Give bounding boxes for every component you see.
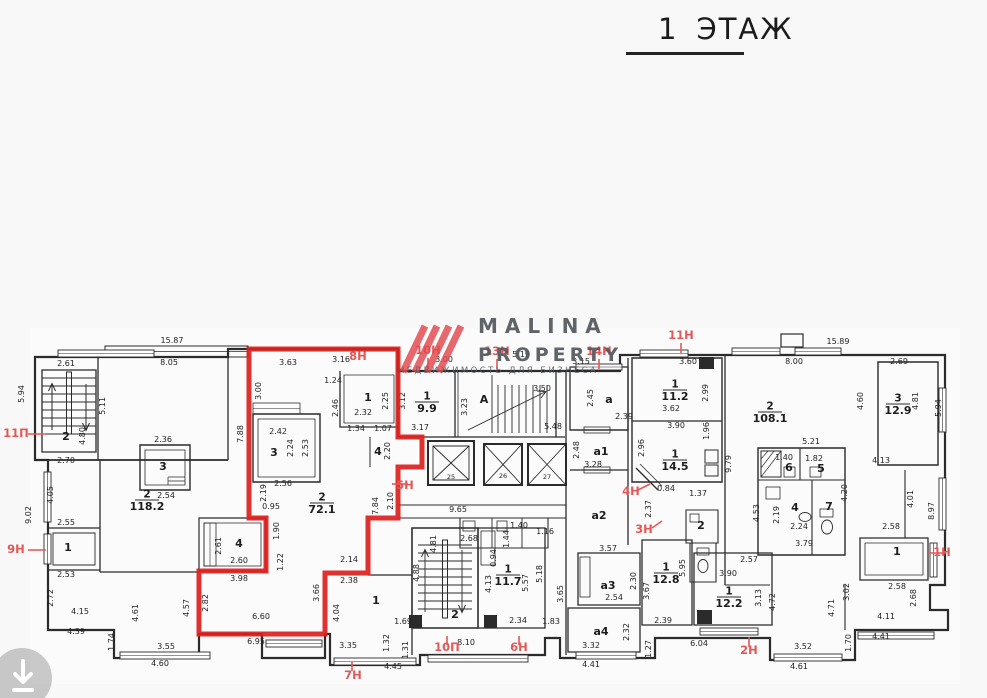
svg-text:5.94: 5.94	[934, 399, 943, 417]
download-arrow-icon	[0, 648, 52, 698]
svg-text:2.32: 2.32	[354, 408, 372, 417]
svg-text:2.24: 2.24	[286, 439, 295, 457]
svg-text:3.66: 3.66	[312, 584, 321, 602]
svg-text:5Н: 5Н	[396, 478, 414, 492]
svg-text:4.57: 4.57	[182, 599, 191, 617]
svg-text:2.24: 2.24	[790, 522, 808, 531]
svg-text:4.60: 4.60	[856, 392, 865, 410]
svg-text:2.38: 2.38	[340, 576, 358, 585]
svg-text:4.88: 4.88	[412, 564, 421, 582]
svg-text:2.30: 2.30	[629, 572, 638, 590]
svg-text:7.88: 7.88	[236, 425, 245, 443]
svg-text:1.37: 1.37	[689, 489, 707, 498]
svg-text:2.96: 2.96	[637, 439, 646, 457]
svg-text:1: 1	[725, 586, 732, 598]
svg-text:4.39: 4.39	[67, 627, 85, 636]
svg-text:2.32: 2.32	[622, 623, 631, 641]
page-title: 1ЭТАЖ	[622, 12, 802, 46]
svg-text:3.13: 3.13	[754, 589, 763, 607]
svg-text:12.2: 12.2	[715, 597, 742, 610]
svg-text:4: 4	[235, 537, 243, 550]
svg-text:13Н: 13Н	[484, 344, 510, 358]
svg-text:25: 25	[447, 473, 455, 481]
download-button[interactable]	[0, 648, 52, 698]
svg-text:4.81: 4.81	[911, 392, 920, 410]
svg-text:2.53: 2.53	[301, 439, 310, 457]
svg-text:5.48: 5.48	[544, 422, 562, 431]
svg-text:4: 4	[791, 501, 799, 514]
svg-text:2.72: 2.72	[46, 589, 55, 607]
svg-text:2.37: 2.37	[644, 500, 653, 518]
svg-text:3.90: 3.90	[719, 569, 737, 578]
svg-text:2: 2	[318, 492, 325, 504]
svg-text:9.02: 9.02	[24, 506, 33, 524]
svg-text:6Н: 6Н	[510, 640, 528, 654]
svg-text:4Н: 4Н	[622, 484, 640, 498]
svg-text:2: 2	[766, 401, 773, 413]
svg-text:9.65: 9.65	[449, 505, 467, 514]
svg-text:2: 2	[451, 608, 459, 621]
svg-text:1.32: 1.32	[382, 634, 391, 652]
svg-text:3: 3	[159, 460, 167, 473]
svg-text:2Н: 2Н	[740, 643, 758, 657]
svg-text:2.69: 2.69	[890, 357, 908, 366]
svg-text:3.02: 3.02	[842, 583, 851, 601]
svg-text:а2: а2	[591, 509, 606, 522]
svg-text:4.71: 4.71	[827, 599, 836, 617]
svg-text:1.74: 1.74	[107, 633, 116, 651]
svg-text:1: 1	[64, 541, 72, 554]
svg-text:2.58: 2.58	[888, 582, 906, 591]
svg-text:0.95: 0.95	[262, 502, 280, 511]
svg-text:3.79: 3.79	[795, 539, 813, 548]
svg-text:3.62: 3.62	[662, 404, 680, 413]
svg-text:2.19: 2.19	[772, 506, 781, 524]
svg-text:2.39: 2.39	[654, 616, 672, 625]
svg-text:2.46: 2.46	[331, 399, 340, 417]
svg-text:11.7: 11.7	[494, 575, 521, 588]
svg-text:7.84: 7.84	[371, 497, 380, 515]
svg-text:14Н: 14Н	[586, 344, 612, 358]
svg-text:3: 3	[270, 446, 278, 459]
svg-text:3.17: 3.17	[411, 423, 429, 432]
svg-text:7Н: 7Н	[344, 668, 362, 682]
svg-text:8.05: 8.05	[160, 358, 178, 367]
svg-text:8.00: 8.00	[785, 357, 803, 366]
svg-text:5.11: 5.11	[98, 397, 107, 415]
svg-text:4.61: 4.61	[131, 604, 140, 622]
floor-word: ЭТАЖ	[696, 12, 793, 46]
svg-text:А: А	[480, 393, 489, 406]
svg-text:а3: а3	[600, 579, 615, 592]
svg-text:а1: а1	[593, 445, 608, 458]
svg-text:2.25: 2.25	[381, 392, 390, 410]
svg-text:2.53: 2.53	[57, 570, 75, 579]
svg-text:1Н: 1Н	[933, 545, 951, 559]
svg-text:2.55: 2.55	[57, 518, 75, 527]
floor-plan-viewer: 15.878.052.615.945.114.802.702.362.544.0…	[0, 0, 987, 698]
svg-text:1.31: 1.31	[401, 641, 410, 659]
svg-text:4.11: 4.11	[877, 612, 895, 621]
svg-text:3.60: 3.60	[679, 357, 697, 366]
svg-text:1.27: 1.27	[644, 640, 653, 658]
svg-text:4.41: 4.41	[872, 632, 890, 641]
svg-text:15.89: 15.89	[827, 337, 850, 346]
svg-text:4.80: 4.80	[78, 427, 87, 445]
walls-layer	[30, 328, 960, 684]
svg-text:3.32: 3.32	[582, 641, 600, 650]
svg-text:2.58: 2.58	[882, 522, 900, 531]
svg-text:2.54: 2.54	[157, 491, 175, 500]
svg-text:10П: 10П	[434, 640, 460, 654]
svg-text:1.70: 1.70	[844, 634, 853, 652]
svg-text:2.10: 2.10	[386, 492, 395, 510]
svg-text:1.40: 1.40	[510, 521, 528, 530]
svg-text:4.04: 4.04	[332, 604, 341, 622]
svg-text:4.81: 4.81	[429, 535, 438, 553]
svg-text:3.16: 3.16	[332, 355, 350, 364]
svg-text:4.05: 4.05	[46, 486, 55, 504]
svg-text:1: 1	[423, 391, 430, 403]
svg-text:а4: а4	[593, 625, 608, 638]
svg-text:5.19: 5.19	[512, 350, 530, 359]
svg-text:3.35: 3.35	[339, 641, 357, 650]
svg-text:118.2: 118.2	[130, 500, 165, 513]
svg-text:1: 1	[364, 391, 372, 404]
svg-text:1.24: 1.24	[324, 376, 342, 385]
svg-text:15.87: 15.87	[161, 336, 184, 345]
svg-text:3.50: 3.50	[533, 384, 551, 393]
svg-text:4.15: 4.15	[71, 607, 89, 616]
svg-text:26: 26	[499, 472, 507, 480]
svg-text:2.99: 2.99	[701, 384, 710, 402]
svg-text:2.68: 2.68	[460, 534, 478, 543]
svg-text:10Н: 10Н	[415, 343, 441, 357]
svg-text:4.13: 4.13	[872, 456, 890, 465]
svg-text:2.45: 2.45	[586, 389, 595, 407]
svg-text:2.60: 2.60	[230, 556, 248, 565]
svg-text:1: 1	[893, 545, 901, 558]
svg-text:2.57: 2.57	[740, 555, 758, 564]
svg-text:9Н: 9Н	[7, 542, 25, 556]
svg-text:2.61: 2.61	[214, 537, 223, 555]
svg-text:8Н: 8Н	[349, 349, 367, 363]
svg-text:8.97: 8.97	[927, 502, 936, 520]
svg-text:12.8: 12.8	[652, 573, 679, 586]
svg-text:1.22: 1.22	[276, 553, 285, 571]
svg-text:1.69: 1.69	[394, 617, 412, 626]
svg-text:3.65: 3.65	[556, 585, 565, 603]
svg-text:2.14: 2.14	[340, 555, 358, 564]
svg-text:1: 1	[671, 449, 678, 461]
svg-text:3.55: 3.55	[157, 642, 175, 651]
svg-text:72.1: 72.1	[308, 503, 335, 516]
floor-plan-drawing: 15.878.052.615.945.114.802.702.362.544.0…	[0, 0, 987, 698]
svg-text:2.68: 2.68	[909, 589, 918, 607]
svg-text:6.04: 6.04	[690, 639, 708, 648]
svg-text:9.79: 9.79	[724, 455, 733, 473]
svg-text:5.18: 5.18	[535, 565, 544, 583]
svg-text:4.45: 4.45	[384, 662, 402, 671]
svg-text:5.57: 5.57	[521, 574, 530, 592]
svg-text:2: 2	[697, 519, 705, 532]
svg-text:5: 5	[817, 462, 825, 475]
svg-text:3.57: 3.57	[599, 544, 617, 553]
svg-text:4.53: 4.53	[752, 504, 761, 522]
svg-text:2.19: 2.19	[259, 484, 268, 502]
svg-text:0.94: 0.94	[489, 549, 498, 567]
svg-text:27: 27	[543, 473, 551, 481]
svg-text:3: 3	[894, 393, 901, 405]
svg-text:11П: 11П	[3, 426, 29, 440]
svg-text:2.42: 2.42	[269, 427, 287, 436]
svg-text:1.83: 1.83	[542, 617, 560, 626]
svg-text:1: 1	[504, 564, 511, 576]
svg-text:3.23: 3.23	[460, 398, 469, 416]
svg-text:3.98: 3.98	[230, 574, 248, 583]
svg-text:4.41: 4.41	[582, 660, 600, 669]
svg-text:108.1: 108.1	[753, 412, 788, 425]
svg-text:1: 1	[671, 379, 678, 391]
floor-number: 1	[658, 12, 676, 46]
svg-text:7: 7	[825, 500, 833, 513]
svg-text:3.63: 3.63	[279, 358, 297, 367]
svg-text:2.82: 2.82	[201, 594, 210, 612]
svg-text:6: 6	[785, 461, 793, 474]
svg-text:4.01: 4.01	[906, 490, 915, 508]
svg-text:11.2: 11.2	[661, 390, 688, 403]
svg-text:2.34: 2.34	[509, 616, 527, 625]
svg-text:1.16: 1.16	[536, 527, 554, 536]
svg-text:3.28: 3.28	[584, 460, 602, 469]
svg-text:2.36: 2.36	[154, 435, 172, 444]
svg-text:3.52: 3.52	[794, 642, 812, 651]
svg-text:11Н: 11Н	[668, 328, 694, 342]
svg-text:4.20: 4.20	[840, 484, 849, 502]
svg-text:2.56: 2.56	[274, 479, 292, 488]
svg-text:2: 2	[143, 489, 150, 501]
svg-text:0.84: 0.84	[657, 484, 675, 493]
svg-text:3.67: 3.67	[642, 582, 651, 600]
svg-text:6.95: 6.95	[247, 637, 265, 646]
svg-text:3Н: 3Н	[635, 522, 653, 536]
svg-text:5.21: 5.21	[802, 437, 820, 446]
svg-text:а: а	[605, 393, 612, 406]
svg-text:4.60: 4.60	[151, 659, 169, 668]
svg-text:9.9: 9.9	[417, 402, 437, 415]
svg-text:2.70: 2.70	[57, 456, 75, 465]
svg-text:4: 4	[374, 445, 382, 458]
svg-text:2.61: 2.61	[57, 359, 75, 368]
svg-text:4.72: 4.72	[768, 593, 777, 611]
svg-text:1: 1	[372, 594, 380, 607]
svg-text:3.00: 3.00	[254, 382, 263, 400]
svg-text:1.96: 1.96	[702, 422, 711, 440]
svg-text:4.61: 4.61	[790, 662, 808, 671]
svg-text:3.90: 3.90	[667, 421, 685, 430]
svg-text:1.90: 1.90	[272, 522, 281, 540]
title-underline	[626, 52, 744, 55]
svg-text:1.44: 1.44	[502, 530, 511, 548]
svg-text:3.15: 3.15	[572, 357, 590, 366]
svg-text:14.5: 14.5	[661, 460, 688, 473]
svg-text:2.39: 2.39	[615, 412, 633, 421]
svg-text:6.60: 6.60	[252, 612, 270, 621]
svg-text:1.34: 1.34	[347, 424, 365, 433]
svg-text:5.94: 5.94	[17, 385, 26, 403]
svg-text:12.9: 12.9	[884, 404, 911, 417]
svg-text:1: 1	[662, 562, 669, 574]
svg-text:2: 2	[62, 430, 70, 443]
svg-text:2.54: 2.54	[605, 593, 623, 602]
svg-text:4.13: 4.13	[484, 575, 493, 593]
svg-text:2.20: 2.20	[383, 442, 392, 460]
svg-text:2.48: 2.48	[572, 441, 581, 459]
svg-text:1.07: 1.07	[374, 424, 392, 433]
